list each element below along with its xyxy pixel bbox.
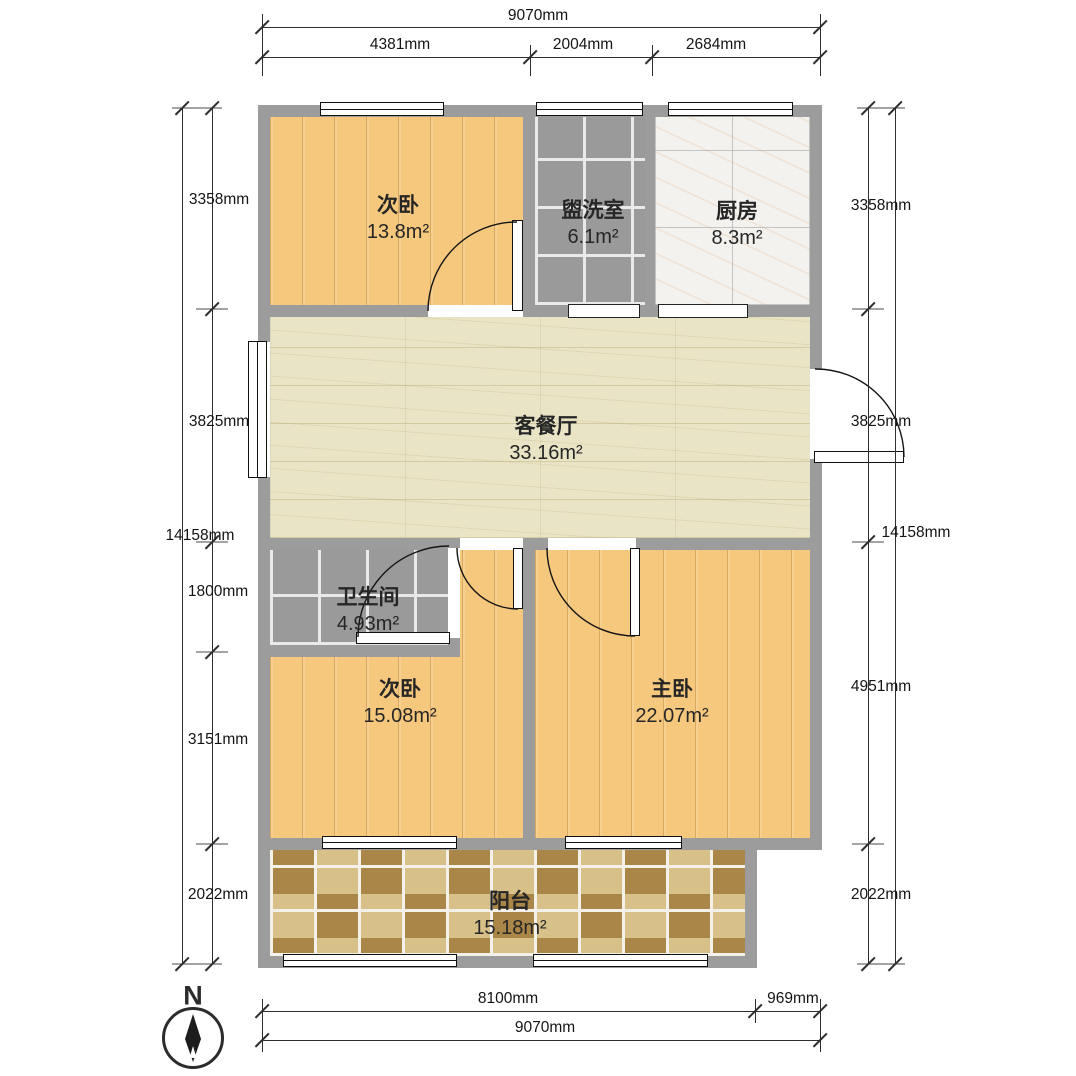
dim-label-left-seg3: 1800mm xyxy=(188,583,248,601)
window-living-left xyxy=(248,341,267,478)
room-name: 阳台 xyxy=(473,889,546,916)
wall-living-bottom xyxy=(258,538,822,550)
dim-label-right-seg2: 3825mm xyxy=(851,413,911,431)
dim-label-top-overall: 9070mm xyxy=(508,7,568,25)
room-area: 15.08m² xyxy=(363,704,436,730)
wall-right xyxy=(810,105,822,850)
window-bedroom-top xyxy=(320,102,444,116)
doorway-entry xyxy=(810,369,822,459)
room-name: 厨房 xyxy=(711,199,762,226)
wall-bathroom-bottom xyxy=(258,645,460,657)
door-leaf-master xyxy=(630,548,640,636)
room-area: 13.8m² xyxy=(367,220,429,246)
dim-label-left-seg1: 3358mm xyxy=(189,191,249,209)
passage-washroom xyxy=(568,304,640,318)
room-label-balcony: 阳台 15.18m² xyxy=(473,889,546,941)
dim-line xyxy=(868,108,869,964)
room-label-washroom: 盥洗室 6.1m² xyxy=(562,198,625,250)
window-washroom xyxy=(536,102,643,116)
wall-balcony-right xyxy=(745,850,757,968)
dim-ext xyxy=(820,999,821,1052)
window-bedroom-left xyxy=(322,836,457,849)
dim-label-bottom-seg2: 969mm xyxy=(767,990,819,1008)
doorway-master xyxy=(548,538,636,550)
dim-label-top-seg1: 4381mm xyxy=(370,36,430,54)
room-name: 次卧 xyxy=(367,193,429,220)
room-name: 主卧 xyxy=(635,677,708,704)
dim-label-bottom-seg1: 8100mm xyxy=(478,990,538,1008)
room-label-bathroom: 卫生间 4.93m² xyxy=(337,585,400,637)
wall-bed2-master xyxy=(523,538,535,850)
window-balcony-left xyxy=(283,954,457,967)
dim-label-bottom-overall: 9070mm xyxy=(515,1019,575,1037)
dim-line xyxy=(262,1011,820,1012)
window-balcony-right xyxy=(533,954,708,967)
room-area: 6.1m² xyxy=(562,225,625,251)
dim-ext xyxy=(262,999,263,1052)
wall-washroom-kitchen xyxy=(645,105,655,317)
doorway-bathroom xyxy=(448,548,460,638)
dim-label-left-seg2: 3825mm xyxy=(189,413,249,431)
dim-label-left-overall: 14158mm xyxy=(166,527,235,545)
doorway-bedroom-top xyxy=(428,305,523,317)
dim-label-right-seg3: 4951mm xyxy=(851,678,911,696)
dim-line xyxy=(262,27,820,28)
compass xyxy=(162,1007,224,1069)
dim-line xyxy=(262,1040,820,1041)
dim-ext xyxy=(652,45,653,76)
window-kitchen xyxy=(668,102,793,116)
dim-label-right-seg1: 3358mm xyxy=(851,197,911,215)
dim-label-left-seg4: 3151mm xyxy=(188,731,248,749)
room-area: 22.07m² xyxy=(635,704,708,730)
door-leaf-bedroom-left xyxy=(513,548,523,609)
dim-label-top-seg3: 2684mm xyxy=(686,36,746,54)
room-name: 次卧 xyxy=(363,677,436,704)
wall-bed1-washroom xyxy=(523,105,535,317)
door-leaf-entry xyxy=(814,451,904,463)
room-area: 8.3m² xyxy=(711,226,762,252)
room-name: 盥洗室 xyxy=(562,198,625,225)
compass-needle-icon xyxy=(165,1010,221,1066)
dim-label-left-seg5: 2022mm xyxy=(188,886,248,904)
room-area: 33.16m² xyxy=(509,441,582,467)
room-name: 卫生间 xyxy=(337,585,400,612)
room-label-master: 主卧 22.07m² xyxy=(635,677,708,729)
room-label-bedroom-top: 次卧 13.8m² xyxy=(367,193,429,245)
floor-plan: 次卧 13.8m² 盥洗室 6.1m² 厨房 8.3m² 客餐厅 33.16m²… xyxy=(0,0,1076,1076)
room-label-kitchen: 厨房 8.3m² xyxy=(711,199,762,251)
room-label-living: 客餐厅 33.16m² xyxy=(509,414,582,466)
room-label-bedroom-left: 次卧 15.08m² xyxy=(363,677,436,729)
dim-label-top-seg2: 2004mm xyxy=(553,36,613,54)
room-name: 客餐厅 xyxy=(509,414,582,441)
dim-label-right-overall: 14158mm xyxy=(882,524,951,542)
dim-ext xyxy=(530,45,531,76)
window-master xyxy=(565,836,682,849)
dim-label-right-seg4: 2022mm xyxy=(851,886,911,904)
room-area: 4.93m² xyxy=(337,612,400,638)
room-area: 15.18m² xyxy=(473,916,546,942)
passage-kitchen xyxy=(658,304,748,318)
dim-line xyxy=(262,57,820,58)
door-leaf-bedroom-top xyxy=(512,220,523,311)
